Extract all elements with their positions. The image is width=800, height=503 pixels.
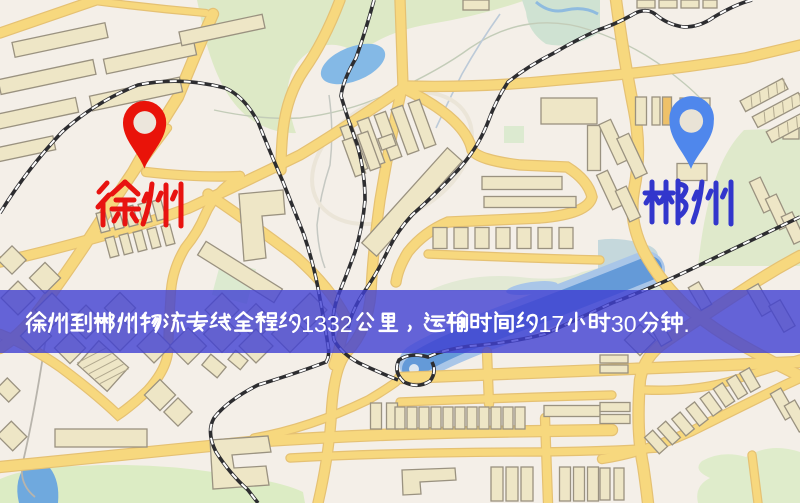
svg-text:17: 17 [539, 311, 565, 337]
svg-text:.: . [683, 311, 689, 337]
svg-text:30: 30 [611, 311, 637, 337]
svg-text:1332: 1332 [301, 311, 352, 337]
